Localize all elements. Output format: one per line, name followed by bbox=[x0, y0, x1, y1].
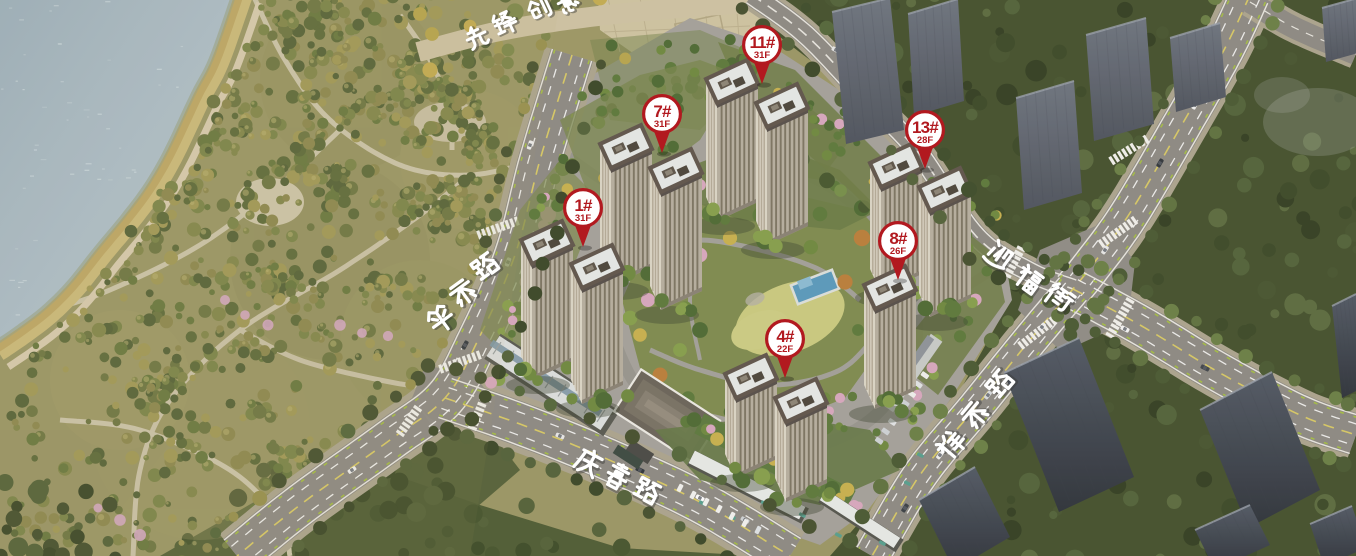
svg-text:28F: 28F bbox=[917, 135, 934, 146]
svg-text:31F: 31F bbox=[754, 50, 771, 61]
svg-text:31F: 31F bbox=[575, 213, 592, 224]
svg-text:31F: 31F bbox=[654, 119, 671, 130]
svg-text:22F: 22F bbox=[777, 344, 794, 355]
svg-text:26F: 26F bbox=[890, 246, 907, 257]
